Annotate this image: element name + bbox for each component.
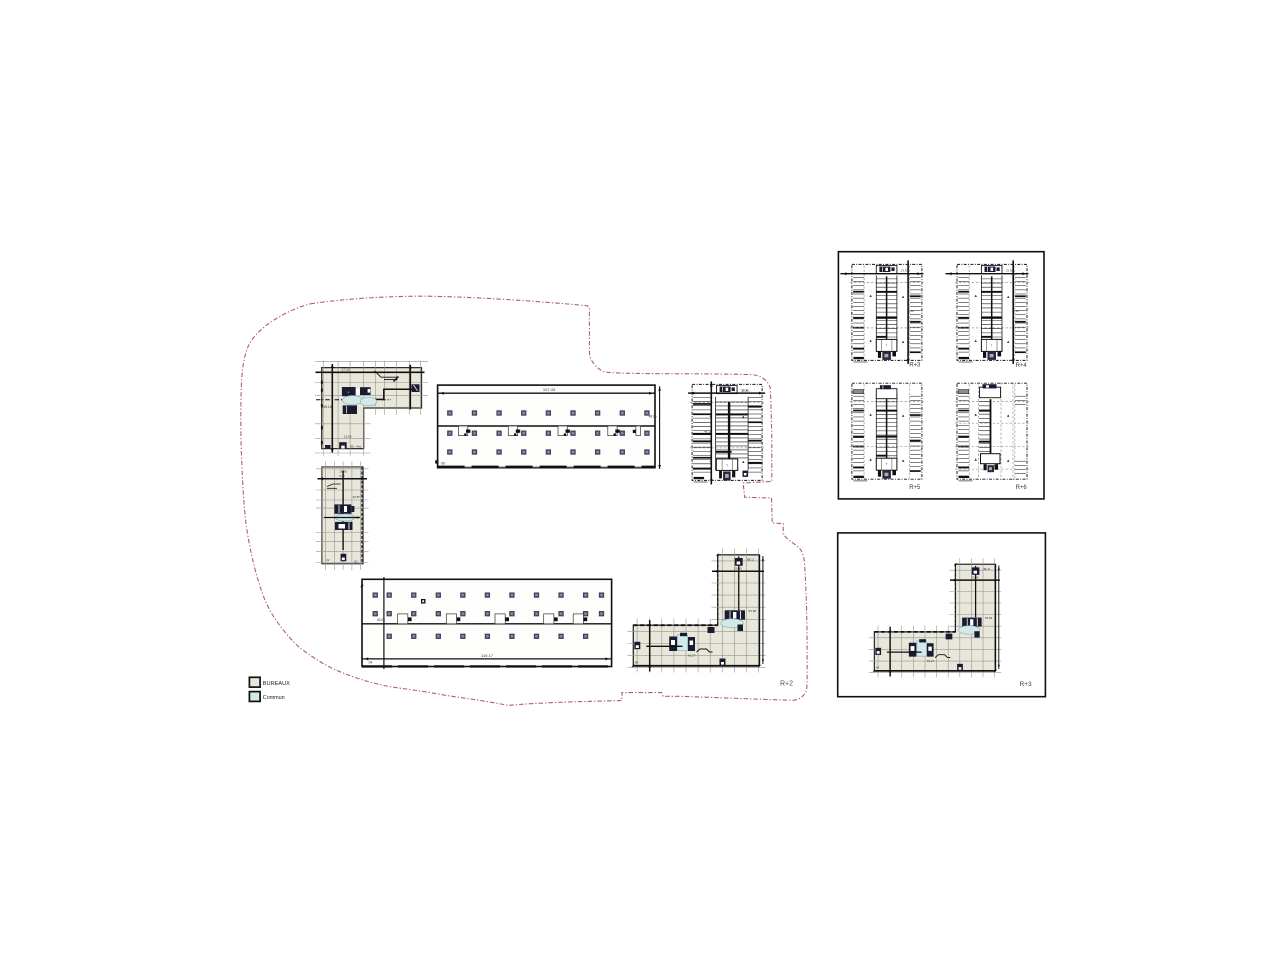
svg-text:84: 84 [635, 661, 639, 665]
svg-text:Commun: Commun [263, 695, 285, 701]
svg-text:61.27: 61.27 [927, 659, 935, 663]
svg-text:BUREAUX: BUREAUX [263, 681, 290, 687]
svg-text:53.98: 53.98 [985, 616, 993, 620]
svg-text:23.30: 23.30 [1006, 269, 1013, 273]
svg-text:5.60: 5.60 [339, 474, 345, 478]
svg-text:02: 02 [326, 558, 330, 562]
svg-text:R+5: R+5 [909, 485, 921, 491]
svg-text:BE 11: BE 11 [747, 558, 754, 562]
svg-text:46.87: 46.87 [352, 495, 360, 499]
svg-text:R+2: R+2 [780, 681, 793, 688]
svg-text:107.43: 107.43 [543, 387, 556, 392]
svg-text:33.30: 33.30 [741, 388, 749, 392]
svg-text:04: 04 [369, 661, 373, 665]
svg-text:B5 - Rez: B5 - Rez [351, 445, 362, 449]
svg-text:45.14: 45.14 [324, 405, 332, 409]
svg-text:R+4: R+4 [1016, 363, 1028, 369]
svg-text:R+3: R+3 [909, 363, 921, 369]
svg-text:10.80: 10.80 [339, 469, 347, 473]
svg-text:47.39: 47.39 [342, 368, 350, 372]
svg-text:23.30: 23.30 [901, 269, 908, 273]
svg-text:53.98: 53.98 [749, 609, 757, 613]
svg-text:B2: B2 [354, 559, 358, 563]
svg-text:06: 06 [441, 462, 445, 466]
svg-text:61.27: 61.27 [688, 654, 696, 658]
svg-text:43.03: 43.03 [377, 618, 385, 622]
svg-text:46.30: 46.30 [1012, 309, 1019, 313]
svg-text:15.96: 15.96 [344, 434, 352, 438]
svg-text:R+3: R+3 [1020, 681, 1032, 688]
svg-text:84: 84 [876, 666, 879, 670]
svg-text:119.17: 119.17 [481, 653, 494, 658]
svg-text:BE 11: BE 11 [984, 568, 991, 571]
svg-text:02: 02 [325, 445, 329, 449]
svg-text:48.37: 48.37 [704, 429, 712, 433]
svg-text:46.30: 46.30 [907, 309, 914, 313]
svg-text:48.05: 48.05 [649, 415, 657, 419]
svg-text:R+6: R+6 [1016, 485, 1028, 491]
